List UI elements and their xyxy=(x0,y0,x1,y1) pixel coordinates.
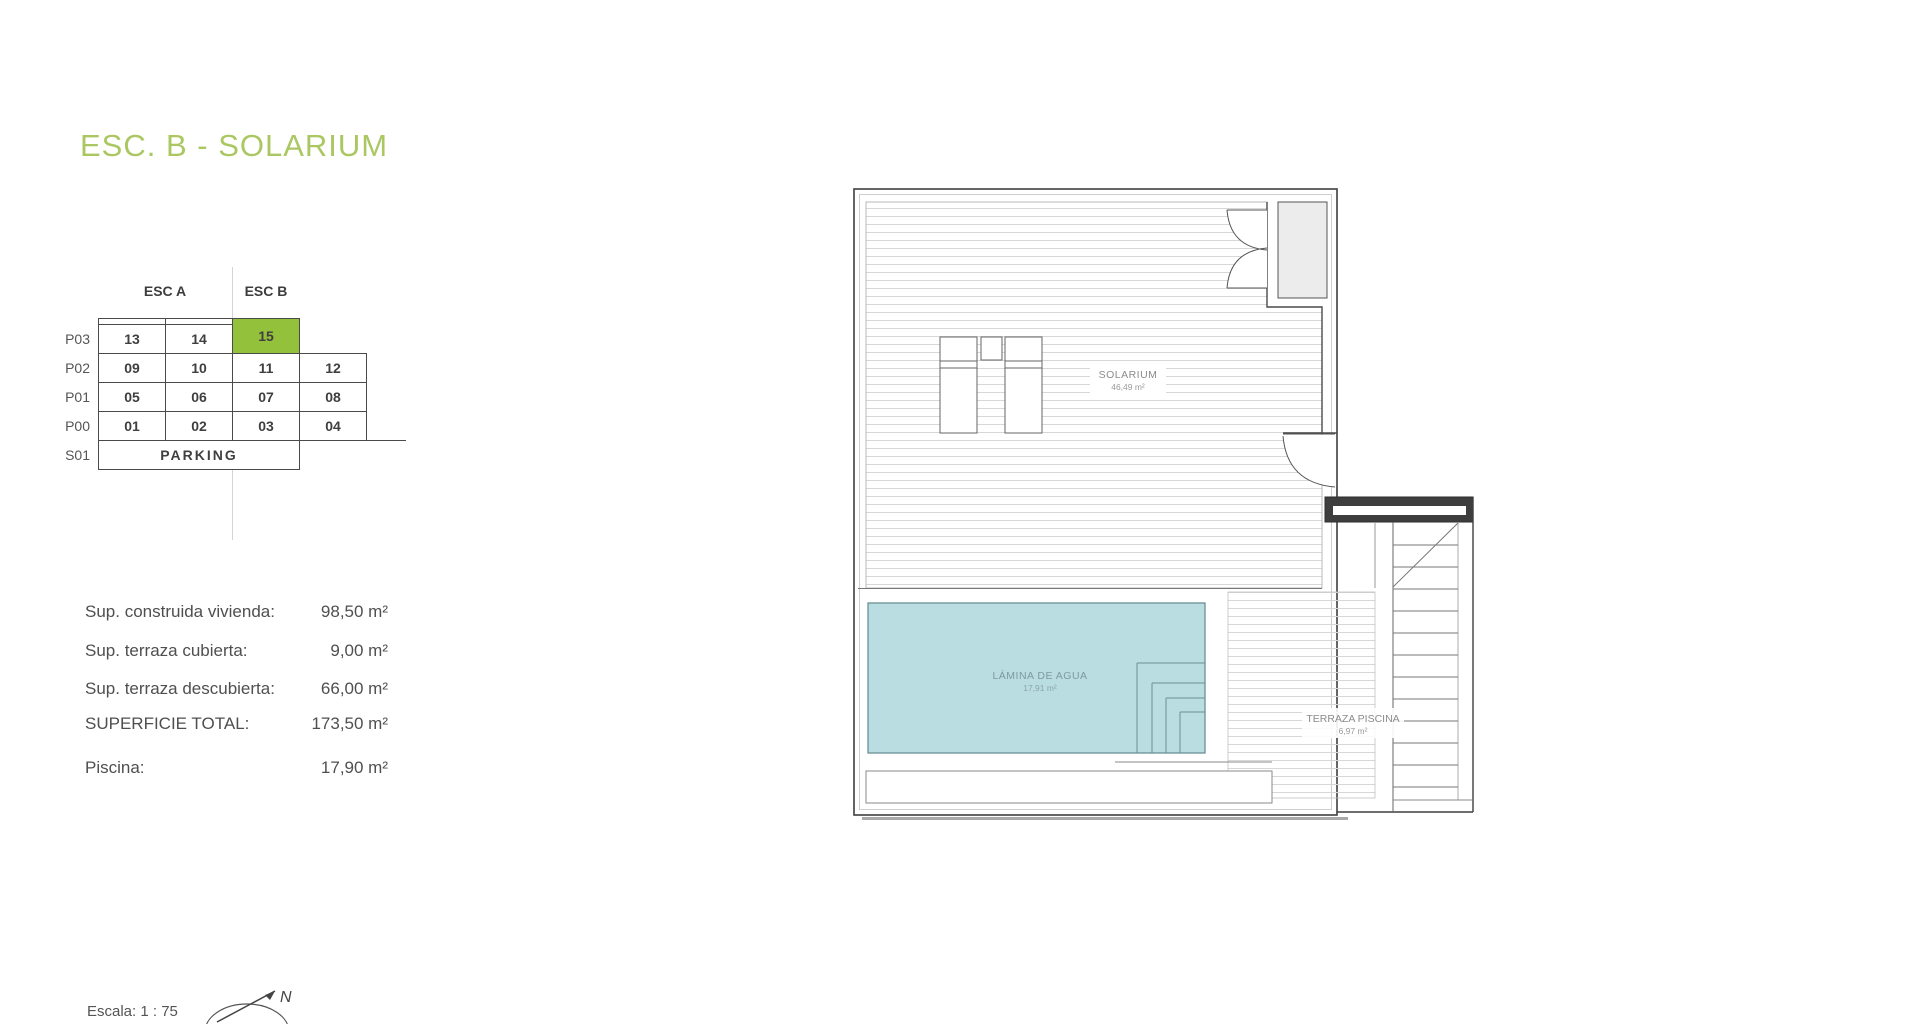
solarium-area: 46,49 m² xyxy=(1111,382,1145,392)
row-label-p03: P03 xyxy=(50,331,90,347)
row-label-p00: P00 xyxy=(50,418,90,434)
parking-cell[interactable]: PARKING xyxy=(98,440,300,470)
unit-cell-09[interactable]: 09 xyxy=(98,353,166,383)
area-value: 66,00 m² xyxy=(321,679,388,699)
area-label: Sup. terraza descubierta: xyxy=(85,679,275,699)
pool-terrace-label: TERRAZA PISCINA xyxy=(1306,713,1399,725)
col-header-esc-a: ESC A xyxy=(98,283,232,299)
area-value: 173,50 m² xyxy=(311,714,388,734)
unit-cell-14[interactable]: 14 xyxy=(165,324,233,354)
area-row: Sup. terraza cubierta: 9,00 m² xyxy=(85,641,388,661)
area-row: Sup. construida vivienda: 98,50 m² xyxy=(85,602,388,622)
unit-cell-11[interactable]: 11 xyxy=(232,353,300,383)
floor-plan: SOLARIUM 46,49 m² LÁMINA DE AGUA 17,91 m… xyxy=(840,180,1500,830)
unit-cell-04[interactable]: 04 xyxy=(299,411,367,441)
side-table xyxy=(981,337,1002,360)
area-value: 9,00 m² xyxy=(330,641,388,661)
table-extension-line xyxy=(366,440,406,441)
pool-area: 17,91 m² xyxy=(1023,683,1057,693)
unit-cell-15-selected[interactable]: 15 xyxy=(232,318,300,354)
area-label: Sup. terraza cubierta: xyxy=(85,641,248,661)
planter-band xyxy=(866,771,1272,803)
roof-access-box xyxy=(1278,202,1327,298)
unit-cell-03[interactable]: 03 xyxy=(232,411,300,441)
section-wall-slot xyxy=(1333,506,1466,515)
unit-cell-05[interactable]: 05 xyxy=(98,382,166,412)
area-label: Piscina: xyxy=(85,758,145,778)
page-title: ESC. B - SOLARIUM xyxy=(80,128,388,164)
col-header-esc-b: ESC B xyxy=(232,283,300,299)
pool-terrace-deck xyxy=(1228,592,1375,798)
pool-label: LÁMINA DE AGUA xyxy=(992,669,1087,682)
area-row: Sup. terraza descubierta: 66,00 m² xyxy=(85,679,388,699)
area-value: 17,90 m² xyxy=(321,758,388,778)
unit-cell-13[interactable]: 13 xyxy=(98,324,166,354)
area-label: Sup. construida vivienda: xyxy=(85,602,275,622)
compass-icon: N xyxy=(195,986,325,1024)
plan-sheet: ESC. B - SOLARIUM ESC A ESC B P03 P02 P0… xyxy=(0,0,1920,1024)
unit-cell-06[interactable]: 06 xyxy=(165,382,233,412)
unit-cell-12[interactable]: 12 xyxy=(299,353,367,383)
compass-n-label: N xyxy=(280,989,292,1006)
area-row: Piscina: 17,90 m² xyxy=(85,758,388,778)
row-label-p02: P02 xyxy=(50,360,90,376)
unit-cell-08[interactable]: 08 xyxy=(299,382,367,412)
area-value: 98,50 m² xyxy=(321,602,388,622)
pool-terrace-area: 6,97 m² xyxy=(1339,726,1368,736)
row-label-p01: P01 xyxy=(50,389,90,405)
unit-cell-10[interactable]: 10 xyxy=(165,353,233,383)
solarium-label: SOLARIUM xyxy=(1099,369,1158,381)
row-label-s01: S01 xyxy=(50,447,90,463)
area-label: SUPERFICIE TOTAL: xyxy=(85,714,249,734)
unit-cell-02[interactable]: 02 xyxy=(165,411,233,441)
scale-label: Escala: 1 : 75 xyxy=(87,1003,178,1020)
unit-cell-01[interactable]: 01 xyxy=(98,411,166,441)
unit-cell-07[interactable]: 07 xyxy=(232,382,300,412)
area-row: SUPERFICIE TOTAL: 173,50 m² xyxy=(85,714,388,734)
